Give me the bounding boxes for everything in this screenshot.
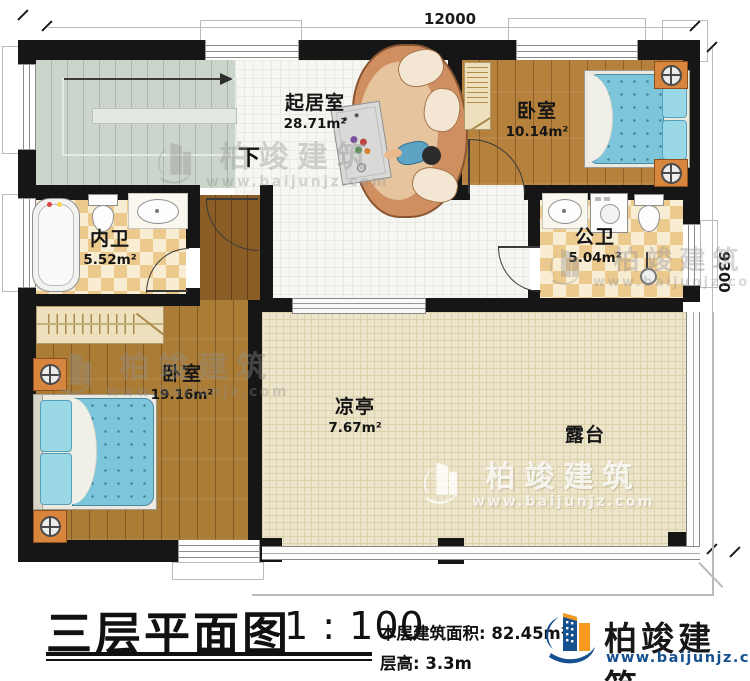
sink-drain xyxy=(155,209,159,213)
room-area: 5.04m² xyxy=(545,250,645,267)
window xyxy=(178,540,260,562)
floor-height-info: 层高: 3.3m xyxy=(380,650,472,674)
room-name: 起居室 xyxy=(255,92,375,116)
room-name: 公卫 xyxy=(545,226,645,250)
stair-direction-line xyxy=(64,78,220,80)
washer-panel xyxy=(604,197,610,201)
wall xyxy=(528,290,540,312)
nightstand xyxy=(33,358,67,391)
room-label-bath-public: 公卫 5.04m² xyxy=(545,226,645,267)
wall xyxy=(36,294,200,306)
door-leaf xyxy=(146,290,188,292)
dimension-tick xyxy=(17,9,28,20)
wardrobe-rail xyxy=(37,323,163,325)
room-label-terrace: 露台 xyxy=(530,424,640,448)
lamp xyxy=(40,516,61,537)
brand-name: 柏竣建筑 xyxy=(604,612,750,681)
wall xyxy=(528,193,540,247)
wall xyxy=(260,185,273,312)
title-underline-thin xyxy=(46,659,372,661)
wall xyxy=(248,300,262,540)
faucet-hot xyxy=(47,202,52,207)
room-area: 10.14m² xyxy=(482,124,592,141)
terrace-railing-right xyxy=(686,312,700,546)
window xyxy=(18,64,36,150)
floor-area-label: 本层建筑面积: xyxy=(380,624,486,643)
wall xyxy=(186,200,200,248)
floor-height-label: 层高: xyxy=(380,654,420,673)
lamp xyxy=(40,364,61,385)
room-name: 露台 xyxy=(530,424,640,448)
eave-line xyxy=(252,594,714,596)
brand-website: www.baijunjz.com xyxy=(606,650,750,666)
stair-rail xyxy=(92,108,237,124)
wall xyxy=(262,298,292,312)
dimension-height: 9300 xyxy=(713,242,733,302)
pillow xyxy=(662,120,687,160)
dimension-width: 12000 xyxy=(390,10,510,28)
wall xyxy=(540,298,683,312)
room-label-pavilion: 凉亭 7.67m² xyxy=(300,396,410,437)
room-name: 卧室 xyxy=(132,363,232,387)
dimension-tick xyxy=(729,546,740,557)
door-leaf xyxy=(498,246,540,248)
lamp xyxy=(661,163,682,184)
dimension-line-top xyxy=(48,27,695,28)
room-label-bath-inner: 内卫 5.52m² xyxy=(60,228,160,269)
stair-down-label: 下 xyxy=(238,140,260,172)
window-bay xyxy=(172,562,264,580)
sliding-door xyxy=(292,298,426,314)
lamp xyxy=(661,65,682,86)
eave-line xyxy=(699,562,724,587)
person-head xyxy=(422,146,441,165)
room-label-living: 起居室 28.71m² xyxy=(255,92,375,133)
floor-plan-sheet: 12000 9300 下 xyxy=(0,0,750,681)
pillow xyxy=(40,453,72,505)
washer-panel xyxy=(595,197,601,201)
window xyxy=(205,40,299,60)
faucet-cold xyxy=(57,202,62,207)
floor-height-value: 3.3m xyxy=(425,654,471,673)
sink xyxy=(548,199,582,224)
room-area: 5.52m² xyxy=(60,252,160,269)
shower-hose xyxy=(646,252,648,268)
eave-line xyxy=(712,312,714,596)
stair-direction-arrow xyxy=(220,73,233,85)
room-label-bedroom-left: 卧室 19.16m² xyxy=(132,363,232,404)
room-area: 28.71m² xyxy=(255,116,375,133)
brand-logo-icon xyxy=(538,606,604,668)
nightstand xyxy=(654,159,688,187)
washer-drum xyxy=(600,204,620,224)
room-area: 19.16m² xyxy=(132,387,232,404)
shower-head xyxy=(640,268,657,285)
window xyxy=(683,224,700,286)
door-leaf xyxy=(206,198,258,200)
door-leaf xyxy=(468,139,470,194)
nightstand xyxy=(33,510,67,543)
room-area: 7.67m² xyxy=(300,420,410,437)
title-underline xyxy=(46,652,372,656)
window xyxy=(516,40,638,60)
room-name: 卧室 xyxy=(482,100,592,124)
wardrobe xyxy=(36,306,164,344)
terrace-railing-bottom xyxy=(262,546,700,560)
wall xyxy=(424,298,528,312)
room-label-bedroom-top: 卧室 10.14m² xyxy=(482,100,592,141)
room-name: 凉亭 xyxy=(300,396,410,420)
sink-drain xyxy=(562,209,566,213)
sink xyxy=(137,199,179,224)
pillow xyxy=(40,400,72,452)
nightstand xyxy=(654,61,688,89)
room-name: 内卫 xyxy=(60,228,160,252)
